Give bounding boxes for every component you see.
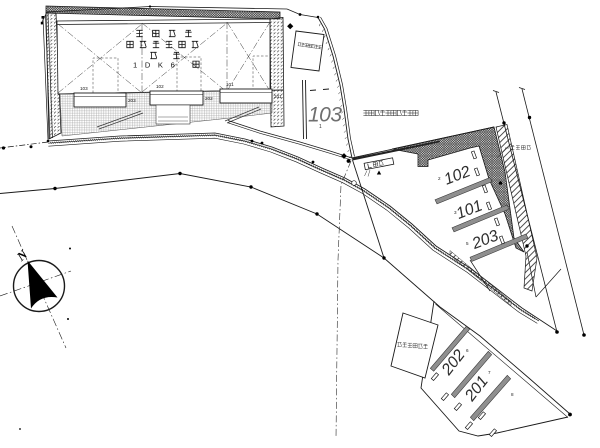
svg-text:103: 103 bbox=[80, 86, 88, 91]
svg-text:101: 101 bbox=[226, 82, 234, 87]
svg-text:203: 203 bbox=[128, 98, 136, 103]
svg-text:3: 3 bbox=[454, 210, 457, 215]
svg-text:102: 102 bbox=[156, 84, 164, 89]
svg-text:1DK6: 1DK6 bbox=[133, 61, 182, 70]
svg-text:202: 202 bbox=[205, 96, 213, 101]
svg-text:5: 5 bbox=[466, 241, 469, 246]
svg-text:8: 8 bbox=[511, 392, 514, 397]
svg-text:7: 7 bbox=[488, 370, 491, 375]
svg-text:1: 1 bbox=[319, 124, 322, 130]
svg-text:201: 201 bbox=[274, 94, 282, 99]
svg-text:2: 2 bbox=[438, 176, 441, 181]
svg-text:103: 103 bbox=[308, 104, 342, 127]
svg-text:6: 6 bbox=[466, 348, 469, 353]
